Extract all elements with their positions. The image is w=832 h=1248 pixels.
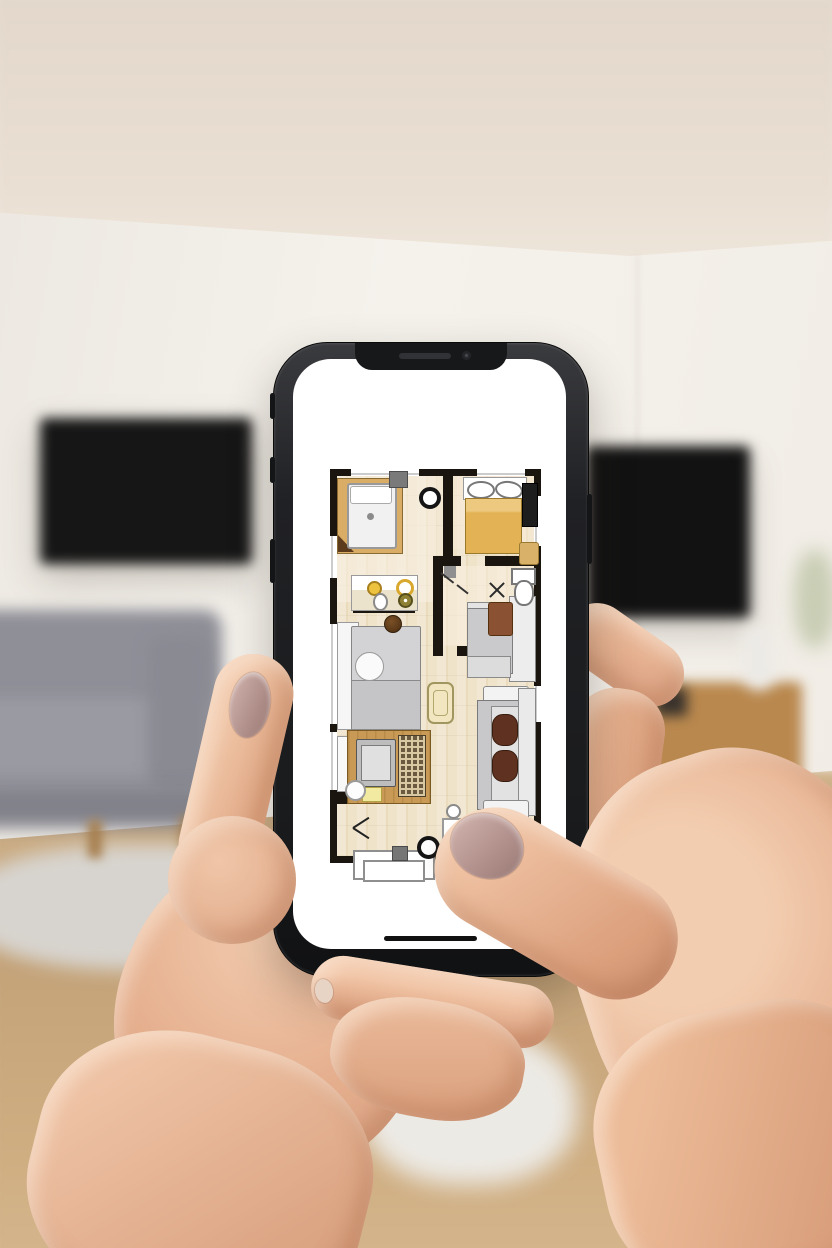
kitchen-sink [373, 593, 388, 611]
left-sofa-blanket [351, 680, 421, 730]
bathroom-wall [433, 556, 443, 656]
wall-tv-right [586, 446, 750, 618]
brown-pillow [492, 750, 518, 782]
bed-headboard[interactable] [463, 477, 527, 500]
large-sofa[interactable] [477, 686, 534, 818]
background-sofa-base [0, 782, 210, 828]
yellow-bed[interactable] [465, 498, 522, 554]
floorplan-canvas[interactable] [330, 469, 541, 863]
white-vase [742, 628, 776, 690]
chevron-bar [352, 827, 369, 839]
volume-down-button [270, 539, 275, 583]
bed-button [367, 513, 374, 520]
bay-window-inner [363, 860, 425, 882]
grey-square-fixture [392, 846, 408, 861]
power-button [587, 494, 592, 564]
left-hand-knuckle [168, 816, 296, 944]
armchair[interactable] [465, 596, 534, 682]
window [477, 469, 525, 476]
window [351, 469, 419, 476]
white-stool[interactable] [345, 780, 366, 801]
window [330, 536, 337, 578]
armchair-brown-cushion [488, 602, 513, 636]
pillow [467, 481, 495, 499]
small-circle-fixture [446, 804, 461, 819]
hallway-pouf[interactable] [427, 682, 454, 724]
armchair-footrest [467, 656, 511, 678]
bed-top-left[interactable] [337, 478, 403, 554]
earpiece-speaker [399, 353, 451, 359]
ceiling-light[interactable] [419, 487, 441, 509]
toilet-bowl [514, 580, 534, 606]
cooktop-burner [398, 593, 413, 608]
wall-tv-left [40, 418, 252, 564]
kitchen-counter[interactable] [351, 575, 418, 611]
pouf-stitch [433, 690, 448, 716]
chevron-bar [352, 817, 369, 829]
mute-switch [270, 393, 275, 419]
laptop[interactable] [356, 739, 396, 787]
sofa-leg [88, 820, 102, 858]
toilet[interactable] [511, 568, 533, 604]
brown-side-table[interactable] [384, 615, 402, 633]
laptop-screen [361, 745, 391, 781]
front-camera [462, 351, 471, 360]
bathroom-wall [443, 556, 461, 566]
wall-cabinet[interactable] [389, 471, 408, 488]
bed-pillow [350, 486, 392, 504]
phone-notch [355, 343, 507, 370]
tan-ottoman[interactable] [519, 542, 539, 565]
home-indicator[interactable] [384, 936, 477, 941]
photo-scene: Close-up photo of two hands holding a sm… [0, 0, 832, 1248]
dark-dresser[interactable] [522, 483, 538, 527]
window [330, 624, 337, 724]
window [330, 732, 337, 790]
keyboard[interactable] [398, 735, 426, 797]
brown-pillow [492, 714, 518, 746]
plant [794, 550, 832, 648]
round-cushion[interactable] [355, 652, 384, 681]
armchair-backrest [509, 596, 536, 682]
volume-up-button [270, 457, 275, 483]
sofa-backrest [518, 688, 536, 816]
door-chevron [353, 814, 377, 842]
interior-wall [443, 469, 453, 565]
